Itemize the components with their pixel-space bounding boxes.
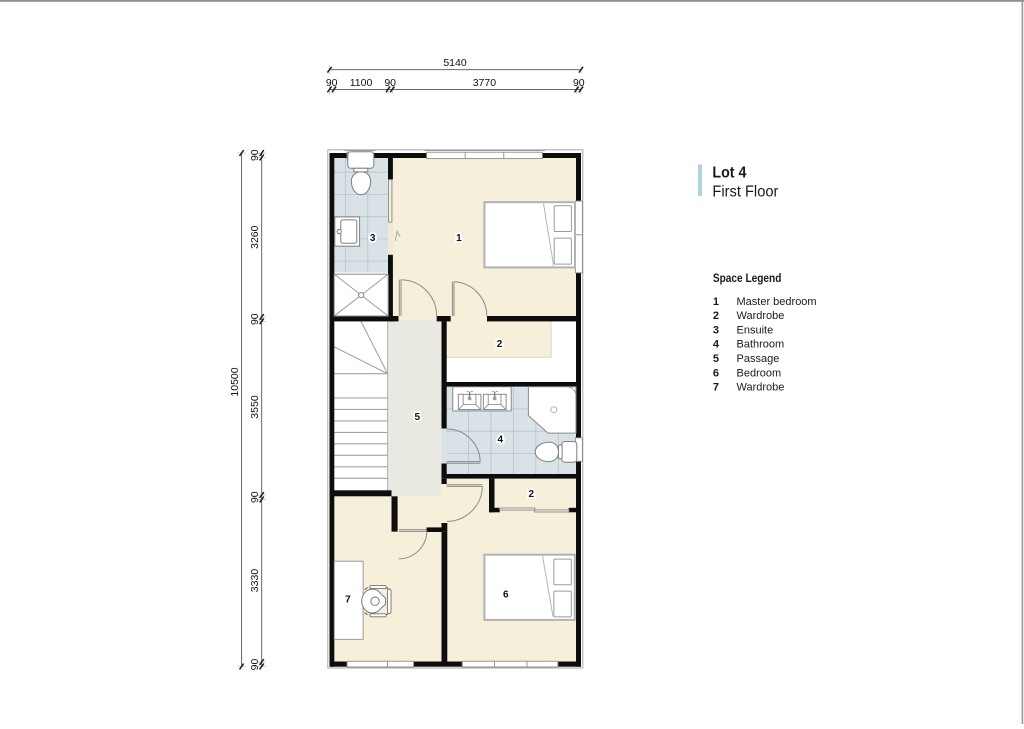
svg-text:Master bedroom: Master bedroom: [737, 296, 817, 308]
svg-text:5: 5: [713, 353, 719, 365]
svg-text:Wardrobe: Wardrobe: [737, 310, 785, 322]
svg-text:2: 2: [497, 339, 503, 350]
svg-text:Space Legend: Space Legend: [713, 273, 782, 285]
svg-text:3: 3: [370, 233, 376, 244]
svg-text:90: 90: [249, 149, 261, 161]
svg-text:10500: 10500: [229, 367, 241, 396]
svg-text:3770: 3770: [473, 77, 497, 89]
svg-text:90: 90: [573, 77, 585, 89]
svg-text:2: 2: [713, 310, 719, 322]
svg-text:3260: 3260: [249, 225, 261, 249]
svg-text:Lot 4: Lot 4: [712, 165, 746, 182]
svg-text:Wardrobe: Wardrobe: [737, 382, 785, 394]
svg-text:Bathroom: Bathroom: [737, 339, 785, 351]
svg-text:90: 90: [326, 77, 338, 89]
svg-text:2: 2: [529, 489, 535, 500]
svg-text:1100: 1100: [350, 77, 373, 89]
svg-text:First Floor: First Floor: [712, 184, 779, 201]
svg-text:90: 90: [249, 491, 261, 503]
svg-text:3: 3: [713, 324, 719, 336]
svg-text:6: 6: [713, 367, 719, 379]
svg-text:Ensuite: Ensuite: [737, 324, 774, 336]
svg-text:4: 4: [713, 339, 720, 351]
svg-text:90: 90: [249, 313, 261, 325]
svg-text:3330: 3330: [249, 569, 261, 593]
svg-text:6: 6: [503, 590, 509, 601]
svg-text:4: 4: [498, 435, 504, 446]
svg-text:7: 7: [345, 595, 351, 606]
svg-text:1: 1: [713, 296, 719, 308]
svg-text:5: 5: [415, 412, 421, 423]
svg-text:Passage: Passage: [737, 353, 780, 365]
svg-text:Bedroom: Bedroom: [737, 367, 782, 379]
svg-text:90: 90: [384, 77, 396, 89]
svg-text:7: 7: [713, 382, 719, 394]
svg-text:90: 90: [249, 659, 261, 671]
svg-text:1: 1: [456, 233, 462, 244]
svg-text:5140: 5140: [443, 57, 467, 69]
svg-text:3550: 3550: [249, 395, 261, 419]
